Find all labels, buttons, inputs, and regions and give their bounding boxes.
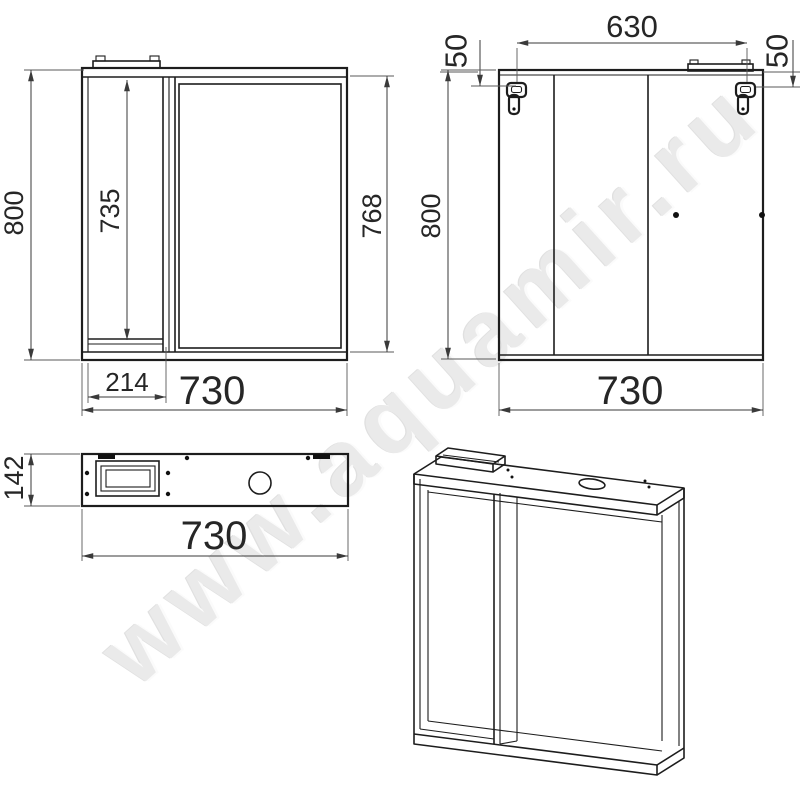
dim-label-top-depth: 142: [0, 455, 29, 500]
screw-hole-dot: [185, 456, 189, 460]
wall-hook-left-icon: [507, 83, 526, 114]
drawing-canvas: 800 735 768 214: [0, 0, 800, 800]
light-fixture-top-icon: [96, 461, 159, 496]
back-outline: [499, 70, 763, 360]
dim-label-back-hook-offset-right: 50: [760, 34, 795, 68]
dim-label-front-width: 730: [179, 369, 246, 413]
wall-hook-right-icon: [736, 83, 755, 114]
dim-label-front-height: 800: [0, 190, 29, 235]
dimension-back-height: 800: [416, 70, 496, 359]
dim-label-back-hook-offset-left: 50: [439, 34, 474, 68]
screw-hole-dot: [306, 456, 310, 460]
dim-label-back-hook-spacing: 630: [606, 9, 658, 44]
dimension-front-left-width: 214: [88, 347, 166, 403]
dim-label-front-door-height: 735: [95, 188, 125, 233]
screw-hole-dot: [85, 492, 89, 496]
lamp-wire-hole-iso: [578, 477, 605, 490]
technical-drawing-page: www.aquamir.ru: [0, 0, 800, 800]
mirror-panel: [179, 84, 341, 348]
screw-hole-dot: [673, 212, 679, 218]
dimension-back-width: 730: [499, 363, 763, 416]
hook-mark-right: [313, 454, 330, 459]
back-view: 630 50 50 800: [416, 9, 800, 416]
screw-hole-dot: [85, 471, 89, 475]
dimension-top-width: 730: [82, 509, 348, 561]
dim-label-front-mirror-height: 768: [357, 193, 387, 238]
dimension-back-hook-offset-left: 50: [439, 34, 517, 86]
lamp-wire-hole: [249, 472, 271, 494]
dim-label-back-height: 800: [416, 193, 446, 238]
dimension-front-height: 800: [0, 70, 84, 360]
dim-label-back-width: 730: [597, 369, 664, 413]
screw-hole-dot: [166, 492, 170, 496]
dimension-front-mirror-height: 768: [350, 76, 394, 352]
hook-mark-left: [98, 454, 115, 459]
screw-hole-dot: [759, 212, 765, 218]
top-view: 142 730: [0, 454, 348, 561]
front-view: 800 735 768 214: [0, 56, 394, 416]
screw-hole-dot: [166, 471, 170, 475]
dimension-top-depth: 142: [0, 454, 80, 506]
iso-view: [414, 448, 684, 775]
dimension-front-door-height: 735: [95, 80, 127, 340]
dim-label-front-left-width: 214: [105, 367, 148, 397]
light-fixture-front-icon: [93, 56, 160, 68]
dim-label-top-width: 730: [181, 514, 248, 558]
